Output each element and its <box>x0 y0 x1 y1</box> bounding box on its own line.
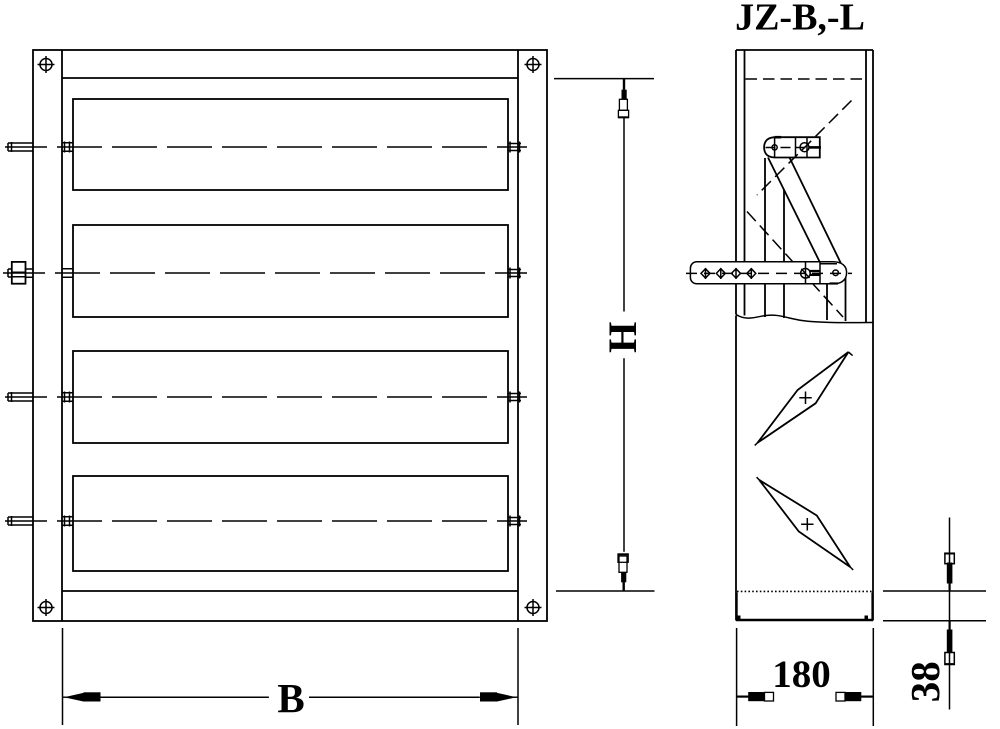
svg-text:180: 180 <box>772 653 831 696</box>
svg-text:H: H <box>600 322 645 353</box>
svg-text:38: 38 <box>902 661 948 702</box>
svg-text:JZ-B,-L: JZ-B,-L <box>735 0 865 39</box>
svg-text:B: B <box>277 675 304 721</box>
